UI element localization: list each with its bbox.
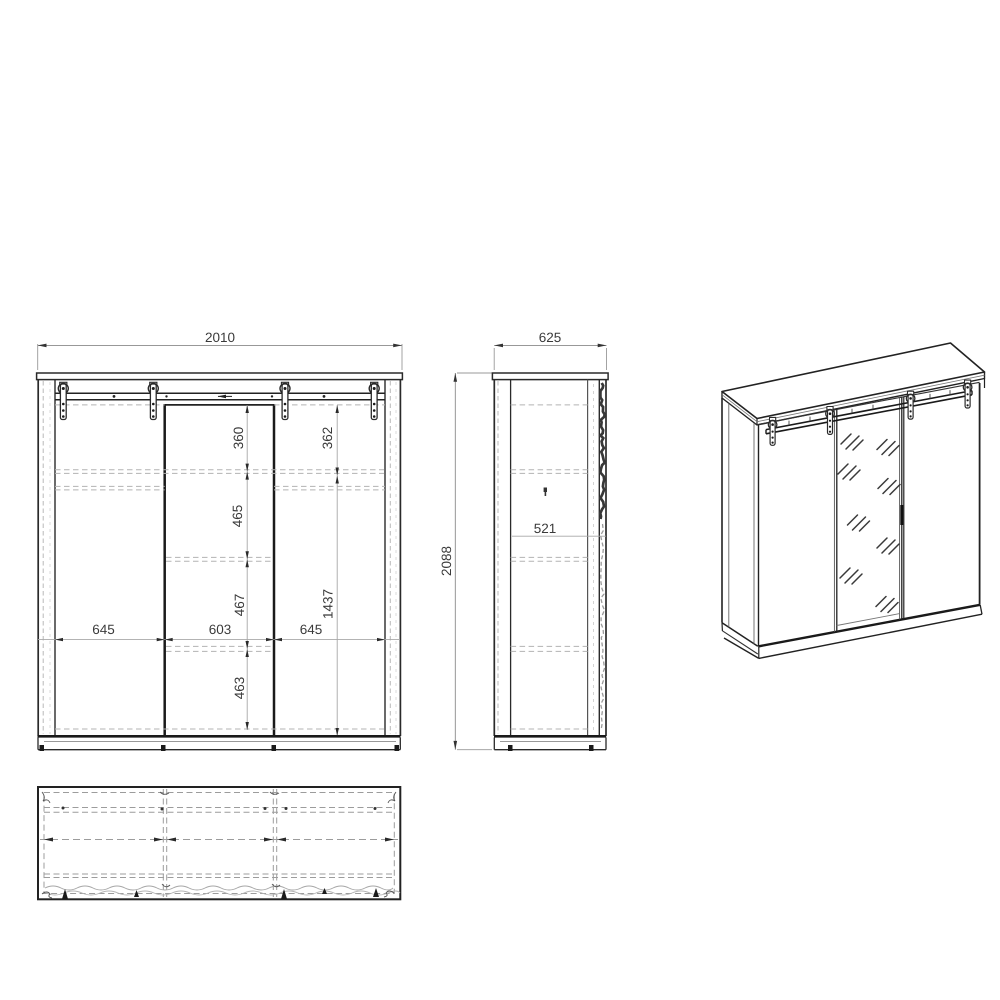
svg-text:2088: 2088 — [439, 546, 454, 576]
svg-text:603: 603 — [209, 622, 232, 637]
svg-text:467: 467 — [232, 594, 247, 617]
svg-text:465: 465 — [230, 505, 245, 528]
svg-text:521: 521 — [534, 521, 557, 536]
svg-text:2010: 2010 — [205, 330, 235, 345]
svg-text:362: 362 — [320, 427, 335, 450]
svg-text:645: 645 — [300, 622, 323, 637]
svg-text:463: 463 — [232, 677, 247, 700]
svg-text:625: 625 — [539, 330, 562, 345]
svg-text:1437: 1437 — [321, 589, 336, 619]
svg-text:360: 360 — [231, 427, 246, 450]
svg-text:645: 645 — [92, 622, 115, 637]
